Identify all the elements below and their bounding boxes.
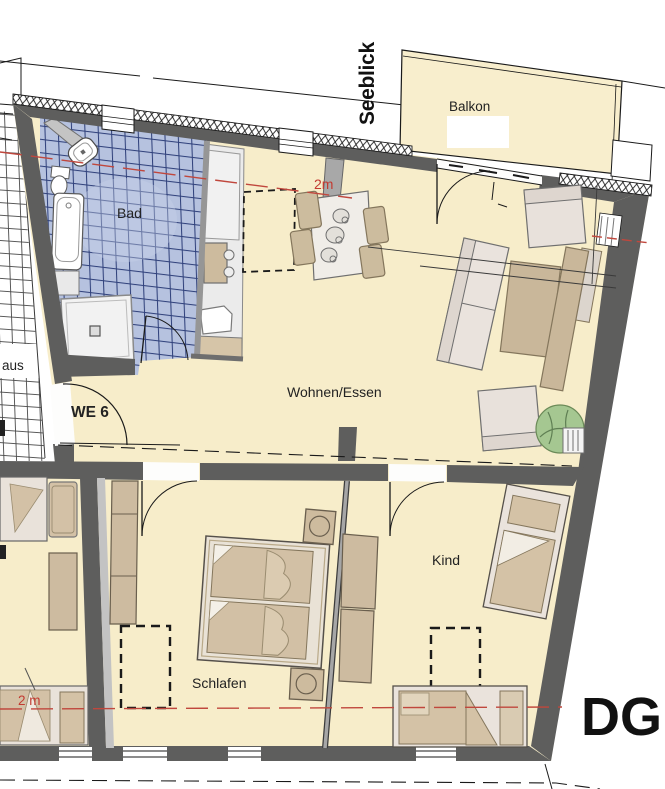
svg-text:Schlafen: Schlafen	[192, 675, 246, 691]
svg-text:2m: 2m	[314, 176, 333, 192]
svg-text:Wohnen/Essen: Wohnen/Essen	[287, 384, 382, 400]
svg-text:2 m: 2 m	[18, 693, 41, 708]
svg-text:DG: DG	[581, 687, 662, 747]
svg-text:Seeblick: Seeblick	[356, 42, 379, 125]
svg-text:WE 6: WE 6	[71, 404, 109, 421]
svg-text:Balkon: Balkon	[449, 99, 490, 114]
svg-text:Kind: Kind	[432, 552, 460, 568]
svg-text:Bad: Bad	[117, 205, 142, 221]
svg-text:aus: aus	[2, 358, 24, 373]
